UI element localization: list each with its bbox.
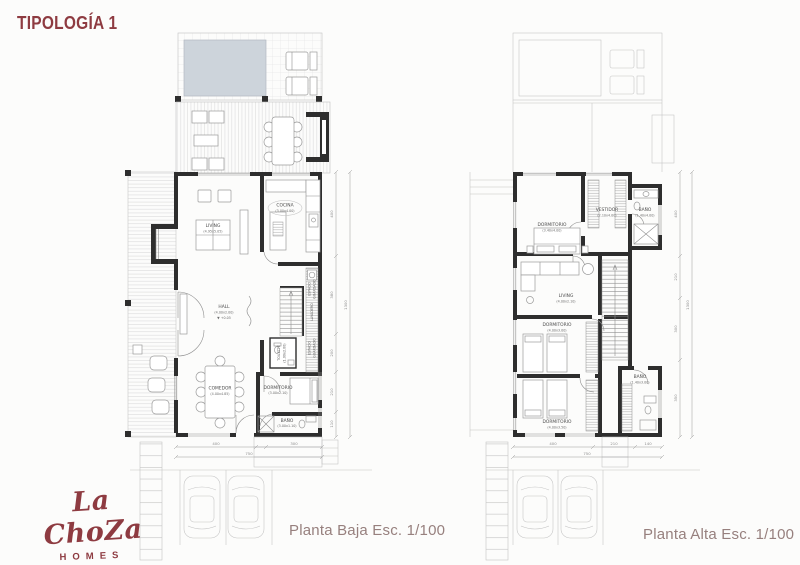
svg-text:750: 750 <box>245 451 253 456</box>
room-label-living-alta: LIVING <box>559 293 574 299</box>
pergola-deck <box>125 170 176 437</box>
svg-text:(3.40x4.00): (3.40x4.00) <box>542 229 561 233</box>
svg-text:(1.40x3.00): (1.40x3.00) <box>630 381 649 385</box>
svg-text:(2.10x4.00): (2.10x4.00) <box>597 214 616 218</box>
stairs-baja <box>280 288 302 336</box>
svg-text:GUARDADO: GUARDADO <box>313 338 317 358</box>
room-label-bano-b: BAÑO <box>634 373 647 380</box>
company-logo: La ChoZa HOMES <box>22 486 162 562</box>
label-espacio-guardado: ESPACIO <box>308 282 312 296</box>
room-level-hall: ▼ +0.05 <box>217 316 231 320</box>
room-dims-toilette: (1.00x2.00) <box>283 343 287 362</box>
car <box>561 476 597 538</box>
svg-text:140: 140 <box>644 441 652 446</box>
svg-text:GUARDADO: GUARDADO <box>313 279 317 299</box>
svg-text:300: 300 <box>673 325 678 333</box>
car <box>184 476 220 538</box>
vestidor-closets <box>588 180 626 228</box>
pool <box>184 40 266 96</box>
caption-planta-baja: Planta Baja Esc. 1/100 <box>289 522 445 539</box>
svg-text:400: 400 <box>329 210 334 218</box>
room-dims-cocina: (3.00x4.00) <box>275 209 294 213</box>
svg-text:1300: 1300 <box>343 300 348 310</box>
svg-text:210: 210 <box>329 388 334 396</box>
svg-text:400: 400 <box>549 441 557 446</box>
car <box>517 476 553 538</box>
room-label-dormitorio-a: DORMITORIO <box>543 322 572 328</box>
svg-text:350: 350 <box>673 394 678 402</box>
svg-text:(1.40x4.00): (1.40x4.00) <box>635 214 654 218</box>
svg-text:380: 380 <box>329 291 334 299</box>
svg-text:1300: 1300 <box>685 300 690 310</box>
svg-text:(4.00x3.00): (4.00x3.00) <box>547 329 566 333</box>
svg-text:(4.00x2.10): (4.00x2.10) <box>556 300 575 304</box>
logo-name: La ChoZa <box>20 481 164 553</box>
room-dims-comedor: (4.00x4.85) <box>210 392 229 396</box>
room-label-dormitorio-ppal: DORMITORIO <box>538 222 567 228</box>
label-espacio-guardado: ESPACIO <box>308 341 312 355</box>
caption-planta-alta: Planta Alta Esc. 1/100 <box>643 526 794 543</box>
label-lavadero: LAVADERO <box>310 303 314 321</box>
pool-terrace <box>175 33 322 102</box>
room-label-toilette: TOILETTE <box>277 345 281 362</box>
room-dims-hall: (4.00x2.00) <box>214 311 233 315</box>
room-label-dormitorio-b: DORMITORIO <box>543 419 572 425</box>
room-label-living: LIVING <box>206 223 221 229</box>
svg-text:400: 400 <box>212 441 220 446</box>
svg-text:210: 210 <box>673 273 678 281</box>
room-dims-living: (4.95x5.05) <box>203 230 222 234</box>
wood-deck <box>176 102 330 173</box>
planta-baja-plan: LIVING (4.95x5.05) COCINA (3.00x4.00) HA… <box>125 33 372 560</box>
room-label-bano: BAÑO <box>281 417 294 424</box>
bath-b-fixtures <box>622 384 656 431</box>
parking-baja <box>130 442 372 560</box>
svg-text:210: 210 <box>610 441 618 446</box>
room-label-bano-a: BAÑO <box>639 206 652 213</box>
room-label-cocina: COCINA <box>276 203 293 209</box>
room-dims-dormitorio: (3.00x2.10) <box>268 391 287 395</box>
walkway <box>486 442 508 560</box>
room-label-vestidor: VESTIDOR <box>596 207 618 213</box>
room-dims-bano: (3.00x1.10) <box>277 424 296 428</box>
svg-text:(4.00x3.50): (4.00x3.50) <box>547 426 566 430</box>
svg-text:200: 200 <box>329 349 334 357</box>
svg-text:750: 750 <box>583 451 591 456</box>
presentation-sheet: TIPOLOGÍA 1 <box>0 0 800 565</box>
planta-alta-plan: DORMITORIO (3.40x4.00) VESTIDOR (2.10x4.… <box>470 33 700 560</box>
svg-text:300: 300 <box>290 441 298 446</box>
outdoor-dining-table <box>264 117 302 165</box>
kitchen-fixtures <box>266 180 320 252</box>
car <box>228 476 264 538</box>
room-label-comedor: COMEDOR <box>209 386 232 392</box>
living-alta-furniture <box>521 262 594 304</box>
room-label-hall: HALL <box>218 304 230 310</box>
floor-plans-drawing: LIVING (4.95x5.05) COCINA (3.00x4.00) HA… <box>0 0 800 565</box>
stairs-alta <box>602 260 628 360</box>
svg-text:400: 400 <box>673 210 678 218</box>
svg-text:110: 110 <box>329 420 334 428</box>
